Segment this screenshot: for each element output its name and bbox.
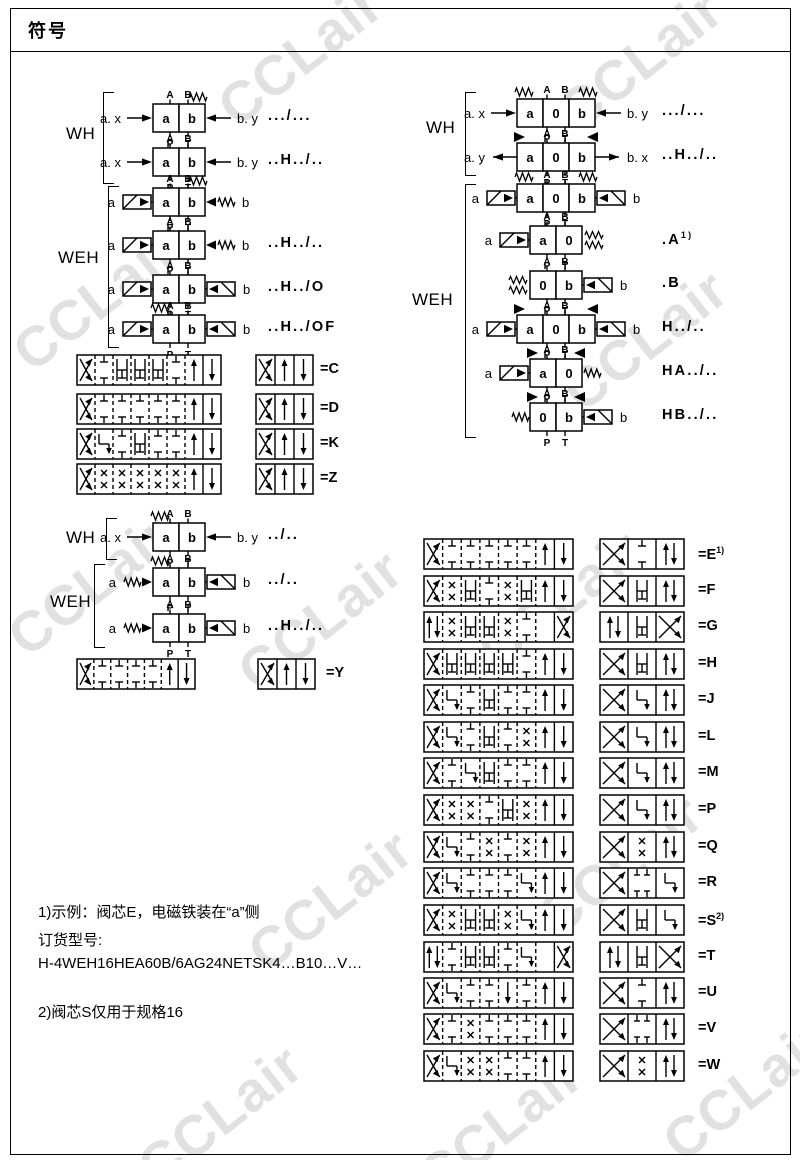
symbol-code: .A1) <box>662 230 693 248</box>
symbol-code: =J <box>698 691 715 707</box>
svg-text:b: b <box>243 282 250 297</box>
svg-text:b: b <box>243 575 250 590</box>
svg-text:a. x: a. x <box>100 111 121 126</box>
spool-symbol-compact <box>599 1050 685 1082</box>
svg-text:b: b <box>565 410 573 425</box>
svg-text:B: B <box>561 170 568 181</box>
spool-symbol-wide <box>423 941 574 973</box>
svg-text:a: a <box>526 150 534 165</box>
svg-text:b: b <box>188 195 196 210</box>
svg-text:b: b <box>188 282 196 297</box>
symbol-diagram: WH WEH WH WEH WH WEH 1)示例：阀芯E，电磁铁装在“a”侧 … <box>0 0 800 1160</box>
svg-text:b: b <box>188 322 196 337</box>
svg-text:A: A <box>543 212 550 223</box>
spool-symbol-wide <box>423 831 574 863</box>
svg-text:B: B <box>561 212 568 223</box>
svg-text:a: a <box>162 322 170 337</box>
spool-symbol-wide <box>423 757 574 789</box>
svg-text:a: a <box>526 322 534 337</box>
svg-text:B: B <box>184 261 191 272</box>
symbol-code: =Z <box>320 470 337 486</box>
symbol-code: =Y <box>326 665 344 681</box>
svg-text:b: b <box>242 238 249 253</box>
svg-text:a: a <box>526 106 534 121</box>
spool-symbol-compact <box>599 721 685 753</box>
svg-text:a: a <box>162 530 170 545</box>
svg-text:b: b <box>620 278 627 293</box>
svg-text:b. x: b. x <box>627 150 648 165</box>
symbol-code: ..H../.. <box>268 152 324 168</box>
symbol-code: ..H../OF <box>268 319 336 335</box>
svg-text:0: 0 <box>565 233 572 248</box>
svg-text:b: b <box>188 238 196 253</box>
svg-text:B: B <box>184 509 191 520</box>
svg-text:a: a <box>162 195 170 210</box>
symbol-code: =D <box>320 400 339 416</box>
svg-text:B: B <box>561 389 568 400</box>
spool-symbol-wide <box>76 393 222 425</box>
spool-symbol-wide <box>423 575 574 607</box>
svg-text:a: a <box>162 621 170 636</box>
svg-text:a: a <box>526 191 534 206</box>
spool-symbol-wide <box>423 611 574 643</box>
svg-text:P: P <box>544 438 551 449</box>
symbol-code: =U <box>698 984 717 1000</box>
symbol-code: ..H../O <box>268 279 325 295</box>
svg-text:b: b <box>620 410 627 425</box>
svg-text:0: 0 <box>552 150 559 165</box>
svg-text:T: T <box>562 438 568 449</box>
svg-text:a: a <box>539 366 547 381</box>
spool-symbol-compact <box>599 831 685 863</box>
symbol-code: =F <box>698 582 715 598</box>
svg-text:0: 0 <box>539 278 546 293</box>
spool-symbol-compact <box>599 648 685 680</box>
svg-text:B: B <box>184 134 191 145</box>
svg-text:B: B <box>184 600 191 611</box>
symbol-code: H../.. <box>662 319 706 335</box>
svg-text:a: a <box>108 282 116 297</box>
spool-symbol-compact <box>599 1013 685 1045</box>
symbol-code: =K <box>320 435 339 451</box>
svg-text:a: a <box>162 575 170 590</box>
svg-text:b: b <box>633 322 640 337</box>
svg-text:A: A <box>166 217 173 228</box>
spool-symbol-wide <box>423 794 574 826</box>
spool-symbol-wide <box>76 428 222 460</box>
symbol-code: .../... <box>662 103 706 119</box>
symbol-code: =R <box>698 874 717 890</box>
footnote-line: 2)阀芯S仅用于规格16 <box>38 1001 183 1022</box>
svg-text:a: a <box>109 575 117 590</box>
symbol-code: =P <box>698 801 716 817</box>
symbol-code: =G <box>698 618 718 634</box>
svg-text:a: a <box>108 238 116 253</box>
symbol-code: =W <box>698 1057 720 1073</box>
svg-text:0: 0 <box>552 106 559 121</box>
svg-text:b: b <box>578 150 586 165</box>
symbol-code: ..H../.. <box>268 235 324 251</box>
spool-symbol-compact <box>599 757 685 789</box>
svg-text:a: a <box>109 621 117 636</box>
spool-symbol-compact <box>255 463 314 495</box>
symbol-code: =V <box>698 1020 716 1036</box>
spool-symbol-compact <box>599 611 685 643</box>
svg-text:A: A <box>543 85 550 96</box>
svg-text:a: a <box>108 322 116 337</box>
svg-text:a. x: a. x <box>100 155 121 170</box>
svg-text:b: b <box>188 530 196 545</box>
svg-text:A: A <box>543 129 550 140</box>
spool-symbol-wide <box>423 977 574 1009</box>
svg-text:B: B <box>561 301 568 312</box>
symbol-code: .../... <box>268 108 312 124</box>
svg-text:b: b <box>243 322 250 337</box>
svg-text:b: b <box>243 621 250 636</box>
symbol-code: .B <box>662 275 681 291</box>
title-bar: 符号 <box>10 8 791 52</box>
symbol-code: =C <box>320 361 339 377</box>
svg-text:A: A <box>166 600 173 611</box>
svg-text:0: 0 <box>552 322 559 337</box>
svg-text:A: A <box>543 301 550 312</box>
spool-symbol-compact <box>255 393 314 425</box>
svg-text:b: b <box>578 322 586 337</box>
catalog-page: CCLairCCLairCCLairCCLairCCLairCCLairCCLa… <box>0 0 800 1160</box>
svg-text:a. y: a. y <box>464 150 485 165</box>
spool-symbol-compact <box>599 977 685 1009</box>
spool-symbol-wide <box>423 538 574 570</box>
svg-text:a. x: a. x <box>100 530 121 545</box>
svg-text:A: A <box>166 174 173 185</box>
svg-text:B: B <box>184 554 191 565</box>
svg-text:b. y: b. y <box>237 530 258 545</box>
symbol-code: =E1) <box>698 545 724 563</box>
symbol-code: =Q <box>698 838 718 854</box>
svg-text:A: A <box>166 261 173 272</box>
svg-text:b: b <box>242 195 249 210</box>
svg-text:a: a <box>485 233 493 248</box>
spool-symbol-wide <box>76 658 196 690</box>
svg-text:a: a <box>162 155 170 170</box>
svg-text:a: a <box>472 191 480 206</box>
svg-text:A: A <box>166 90 173 101</box>
spool-symbol-wide <box>76 354 222 386</box>
spool-symbol-compact <box>255 428 314 460</box>
svg-text:b: b <box>633 191 640 206</box>
svg-text:B: B <box>184 217 191 228</box>
spool-symbol-compact <box>599 575 685 607</box>
page-title: 符号 <box>28 17 68 43</box>
spool-symbol-compact <box>257 658 316 690</box>
symbol-code: ../.. <box>268 527 299 543</box>
svg-text:A: A <box>543 345 550 356</box>
symbol-code: HA../.. <box>662 363 719 379</box>
symbol-code: HB../.. <box>662 407 719 423</box>
svg-text:b: b <box>188 155 196 170</box>
spool-symbol-compact <box>599 538 685 570</box>
svg-text:b: b <box>188 575 196 590</box>
spool-symbol-compact <box>255 354 314 386</box>
svg-text:b: b <box>188 111 196 126</box>
spool-symbol-wide <box>423 1050 574 1082</box>
spool-symbol-wide <box>423 684 574 716</box>
svg-text:0: 0 <box>539 410 546 425</box>
svg-text:0: 0 <box>565 366 572 381</box>
spool-symbol-wide <box>76 463 222 495</box>
svg-text:b: b <box>578 106 586 121</box>
symbol-code: =L <box>698 728 715 744</box>
symbol-code: =T <box>698 948 715 964</box>
svg-text:a: a <box>539 233 547 248</box>
spool-symbol-compact <box>599 941 685 973</box>
svg-text:A: A <box>166 134 173 145</box>
footnote-line: 1)示例：阀芯E，电磁铁装在“a”侧 <box>38 901 260 922</box>
svg-text:a: a <box>472 322 480 337</box>
spool-symbol-compact <box>599 684 685 716</box>
spool-symbol-wide <box>423 1013 574 1045</box>
svg-text:a: a <box>162 238 170 253</box>
symbol-code: ../.. <box>268 572 299 588</box>
svg-text:a: a <box>162 282 170 297</box>
svg-text:a: a <box>162 111 170 126</box>
svg-text:B: B <box>561 85 568 96</box>
svg-text:A: A <box>543 257 550 268</box>
symbol-code: =M <box>698 764 719 780</box>
spool-symbol-compact <box>599 794 685 826</box>
svg-text:b. y: b. y <box>237 155 258 170</box>
svg-text:A: A <box>543 389 550 400</box>
svg-text:B: B <box>561 129 568 140</box>
spool-symbol-wide <box>423 721 574 753</box>
svg-text:B: B <box>561 257 568 268</box>
footnote-line: H-4WEH16HEA60B/6AG24NETSK4…B10…V… <box>38 955 362 972</box>
symbol-code: ..H../.. <box>662 147 718 163</box>
svg-text:a. x: a. x <box>464 106 485 121</box>
spool-symbol-wide <box>423 904 574 936</box>
symbol-code: ..H../.. <box>268 618 324 634</box>
svg-text:b: b <box>578 191 586 206</box>
svg-text:A: A <box>543 170 550 181</box>
svg-text:B: B <box>184 301 191 312</box>
svg-text:b. y: b. y <box>237 111 258 126</box>
svg-text:a: a <box>108 195 116 210</box>
spool-symbol-compact <box>599 904 685 936</box>
svg-text:0: 0 <box>552 191 559 206</box>
svg-text:b. y: b. y <box>627 106 648 121</box>
svg-text:a: a <box>485 366 493 381</box>
symbol-code: =H <box>698 655 717 671</box>
symbol-code: =S2) <box>698 911 724 929</box>
svg-text:b: b <box>565 278 573 293</box>
footnote-line: 订货型号: <box>38 929 102 950</box>
svg-text:b: b <box>188 621 196 636</box>
svg-text:B: B <box>561 345 568 356</box>
spool-symbol-compact <box>599 867 685 899</box>
spool-symbol-wide <box>423 648 574 680</box>
spool-symbol-wide <box>423 867 574 899</box>
